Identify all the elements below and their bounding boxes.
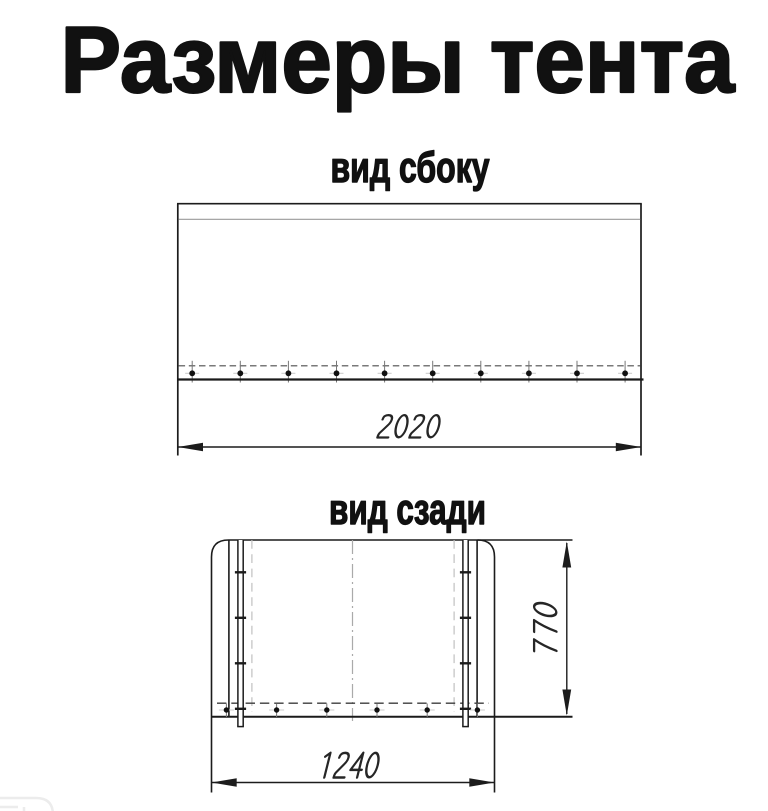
svg-text:вид сбоку: вид сбоку <box>331 144 490 192</box>
svg-text:вид сзади: вид сзади <box>329 486 486 534</box>
svg-text:Размеры тента: Размеры тента <box>61 7 736 112</box>
